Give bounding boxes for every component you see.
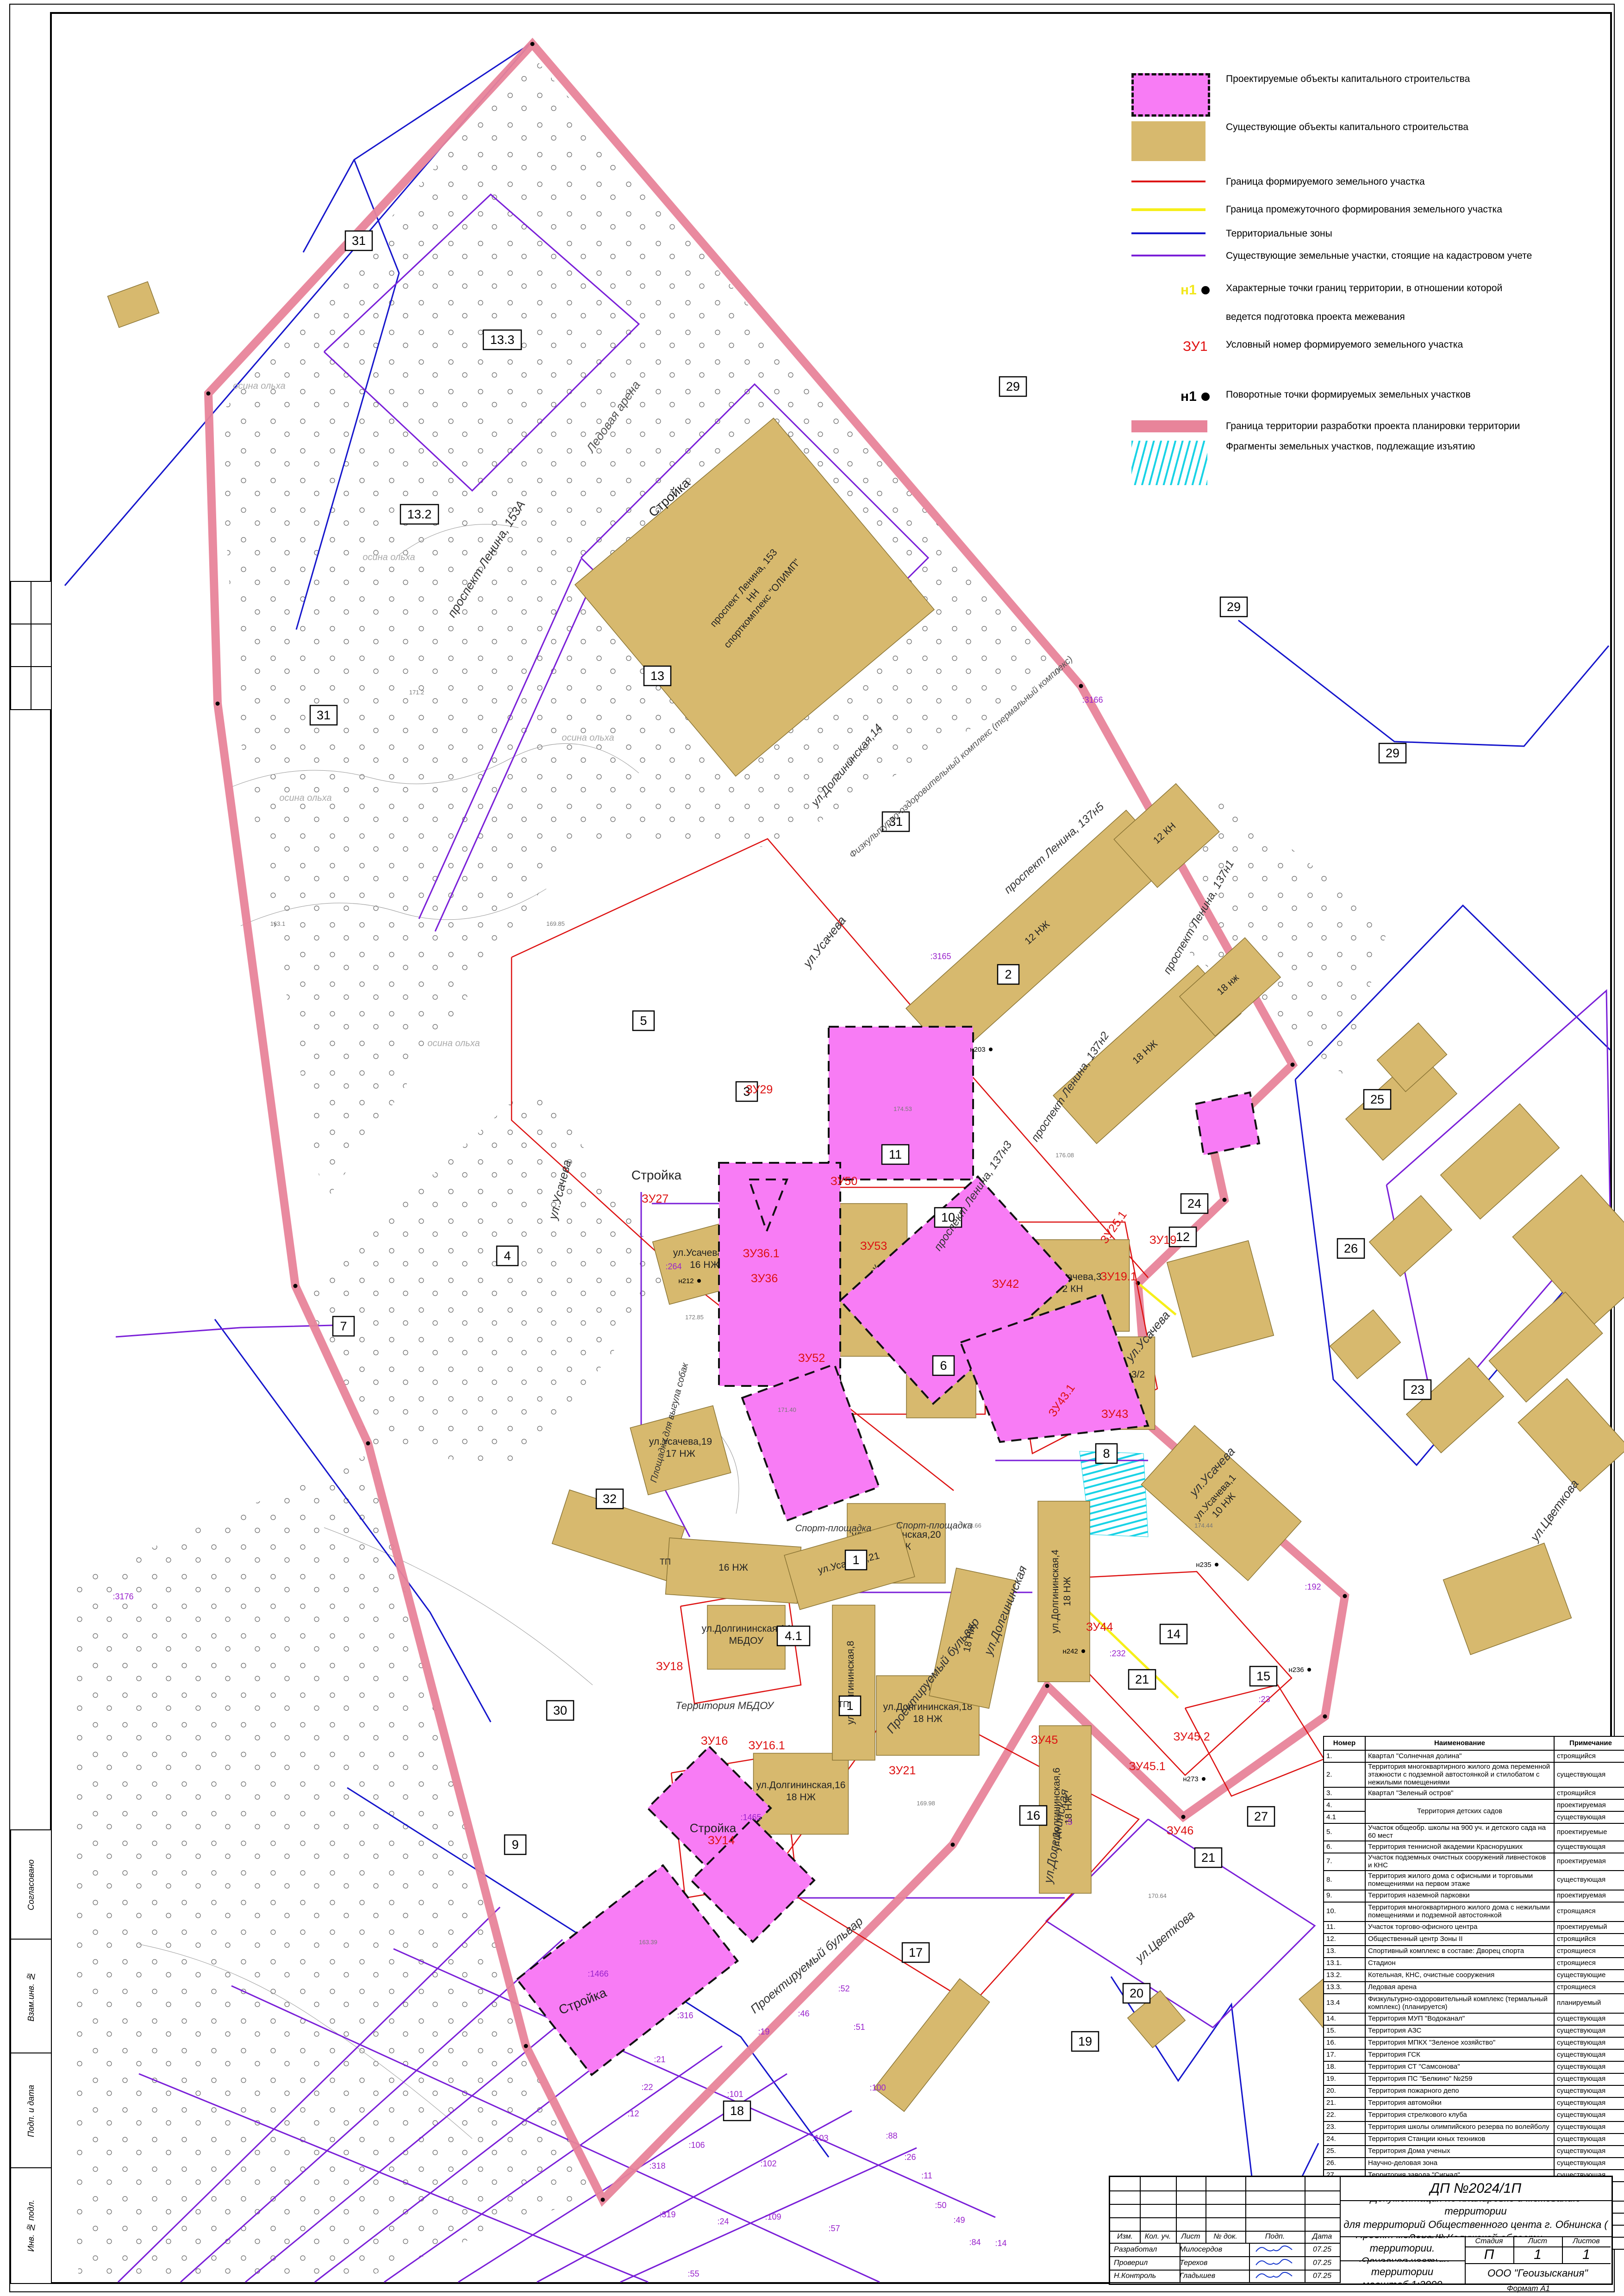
area-number: 24. — [1324, 2134, 1365, 2146]
area-note: строящиеся — [1554, 1946, 1624, 1958]
stamp-empty-cell — [1206, 2204, 1246, 2218]
legend: Проектируемые объекты капитального строи… — [1111, 65, 1607, 491]
area-name: Ледовая арена — [1365, 1982, 1554, 1994]
format-label: Формат А1 — [1507, 2284, 1550, 2293]
parcel-number-label: :3176 — [112, 1592, 133, 1601]
turning-point — [1202, 1777, 1206, 1781]
parcel-number-label: :1465 — [740, 1813, 761, 1822]
table-row: 6.Территория теннисной академии Краснору… — [1324, 1841, 1624, 1853]
elevation-mark: 169.85 — [546, 920, 565, 927]
area-note: строящиеся — [1554, 1958, 1624, 1970]
zu-parcel-label: ЗУ29 — [746, 1083, 773, 1096]
stamp-stage-header: Листов — [1562, 2236, 1611, 2247]
area-number-label: 21 — [1201, 1851, 1215, 1865]
area-name: Участок подземных очистных сооружений ли… — [1365, 1853, 1554, 1871]
turning-point — [1081, 1649, 1085, 1653]
parcel-number-label: :12 — [627, 2109, 639, 2118]
table-row: 9.Территория наземной парковкипроектируе… — [1324, 1890, 1624, 1902]
zu-parcel-label: ЗУ19 — [1149, 1234, 1177, 1247]
area-number-label: 13 — [650, 669, 664, 683]
parcel-number-label: :5 — [1065, 1817, 1072, 1827]
area-number: 23. — [1324, 2121, 1365, 2134]
area-note: существующая — [1554, 2134, 1624, 2146]
turning-point — [1215, 1563, 1218, 1566]
area-number-label: 13.3 — [490, 333, 515, 347]
area-number: 11. — [1324, 1922, 1365, 1934]
boundary-point — [216, 702, 220, 706]
table-row: 13.2.Котельная, КНС, очистные сооружения… — [1324, 1970, 1624, 1982]
area-note: строящаяся — [1554, 1902, 1624, 1922]
area-number: 20. — [1324, 2085, 1365, 2097]
map-text-label: ТП — [838, 1700, 849, 1709]
map-text-label: Территория МБДОУ — [675, 1700, 775, 1711]
stamp-empty-cell — [1245, 2177, 1305, 2191]
parcel-number-label: :264 — [665, 1262, 681, 1271]
boundary-point — [1223, 1198, 1227, 1202]
parcel-number-label: :3166 — [1082, 695, 1103, 705]
boundary-point — [524, 2044, 528, 2048]
stamp-empty-cell — [1206, 2190, 1246, 2205]
zu-parcel-label: ЗУ36.1 — [743, 1247, 779, 1260]
area-number-label: 26 — [1344, 1242, 1358, 1255]
area-number-label: 20 — [1130, 1986, 1143, 2000]
parcel-number-label: :51 — [853, 2022, 865, 2032]
parcel-number-label: :52 — [838, 1984, 849, 1993]
area-number-label: 29 — [1006, 380, 1020, 393]
areas-table-header: Наименование — [1365, 1736, 1554, 1750]
parcel-number-label: :1466 — [587, 1969, 608, 1978]
area-number-label: 19 — [1078, 2034, 1092, 2048]
area-name: Территория школы олимпийского резерва по… — [1365, 2121, 1554, 2134]
parcel-number-label: :102 — [760, 2159, 776, 2168]
boundary-point — [1045, 1684, 1049, 1688]
map-text-label: осина ольха — [562, 733, 614, 743]
area-note: существующая — [1554, 2025, 1624, 2037]
area-name: Стадион — [1365, 1958, 1554, 1970]
area-number: 1. — [1324, 1750, 1365, 1762]
area-number: 14. — [1324, 2013, 1365, 2025]
parcel-number-label: :57 — [828, 2224, 840, 2233]
area-name: Территория многоквартирного жилого дома … — [1365, 1762, 1554, 1787]
parcel-number-label: :50 — [935, 2201, 946, 2210]
parcel-number-label: :22 — [641, 2083, 653, 2092]
area-number-label: 31 — [317, 708, 331, 722]
area-note: проектируемая — [1554, 1853, 1624, 1871]
zu-parcel-label: ЗУ52 — [798, 1352, 825, 1365]
turning-point-label: н273 — [1183, 1775, 1198, 1783]
legend-label: Характерные точки границ территории, в о… — [1226, 282, 1596, 324]
area-note: проектируемые — [1554, 1823, 1624, 1841]
stamp-signature — [1245, 2270, 1305, 2283]
area-note: существующая — [1554, 1841, 1624, 1853]
area-note: строящийся — [1554, 1750, 1624, 1762]
zu-parcel-label: ЗУ18 — [656, 1660, 683, 1673]
map-text-label: Спорт-площадка — [896, 1521, 972, 1531]
area-number-label: 12 — [1176, 1230, 1190, 1244]
boundary-point — [1291, 1063, 1295, 1067]
parcel-number-label: :106 — [688, 2140, 705, 2150]
legend-label: Существующие объекты капитального строит… — [1226, 121, 1596, 133]
boundary-point — [1079, 684, 1083, 688]
table-row: 16.Территория МПКХ "Зеленое хозяйство"су… — [1324, 2037, 1624, 2049]
stamp-role: Н.Контроль — [1110, 2270, 1181, 2283]
stamp-col-header: Дата — [1305, 2231, 1341, 2244]
area-name: Территория пожарного депо — [1365, 2085, 1554, 2097]
existing-building — [874, 1979, 989, 2112]
map-text-label: Стройка — [690, 1821, 737, 1835]
stamp-empty-cell — [1140, 2217, 1177, 2232]
table-row: 11.Участок торгово-офисного центрапроект… — [1324, 1922, 1624, 1934]
zu-parcel-label: ЗУ50 — [831, 1175, 858, 1188]
area-note: существующая — [1554, 2109, 1624, 2121]
boundary-point — [294, 1284, 298, 1288]
stamp-empty-cell — [1206, 2217, 1246, 2232]
area-name: Территория наземной парковки — [1365, 1890, 1554, 1902]
parcel-number-label: :192 — [1305, 1582, 1321, 1591]
legend-swatch-line-yellow — [1131, 208, 1206, 211]
parcel-number-label: :319 — [659, 2210, 675, 2219]
existing-building — [1443, 1543, 1572, 1655]
stamp-empty-cell — [1176, 2190, 1206, 2205]
zu-parcel-label: ЗУ42 — [992, 1278, 1019, 1291]
boundary-point — [1323, 1715, 1327, 1719]
area-number: 3. — [1324, 1787, 1365, 1799]
area-number-label: 29 — [1386, 746, 1399, 760]
legend-swatch-line-blue — [1131, 232, 1206, 234]
existing-building — [1518, 1379, 1624, 1491]
area-number: 4. — [1324, 1799, 1365, 1811]
zu-parcel-label: ЗУ16 — [701, 1734, 728, 1747]
stamp-stage-value: П — [1465, 2246, 1514, 2264]
table-row: 13.Спортивный комплекс в составе: Дворец… — [1324, 1946, 1624, 1958]
zu-parcel-label: ЗУ36 — [751, 1272, 778, 1285]
area-number: 8. — [1324, 1871, 1365, 1890]
area-number-label: 31 — [352, 234, 366, 248]
table-row: 23.Территория школы олимпийского резерва… — [1324, 2121, 1624, 2134]
legend-swatch-hatch — [1131, 441, 1207, 485]
area-note: проектируемая — [1554, 1799, 1624, 1811]
zu-parcel-label: ЗУ44 — [1086, 1621, 1113, 1634]
area-note: существующая — [1554, 2158, 1624, 2170]
elevation-mark: 171.40 — [778, 1406, 796, 1413]
stamp-empty-cell — [1176, 2177, 1206, 2191]
parcel-number-label: :232 — [1109, 1649, 1125, 1658]
parcel-number-label: :21 — [654, 2055, 665, 2064]
area-note: существующие — [1554, 1970, 1624, 1982]
area-number: 19. — [1324, 2073, 1365, 2085]
area-number-label: 25 — [1370, 1092, 1384, 1106]
turning-point — [989, 1048, 993, 1051]
area-number-label: 4 — [504, 1249, 511, 1263]
drawing-sheet: проспект Ленина, 153ННспорткомплекс "ОЛИ… — [0, 0, 1624, 2296]
area-name: Научно-деловая зона — [1365, 2158, 1554, 2170]
area-number: 13.1. — [1324, 1958, 1365, 1970]
area-number: 13. — [1324, 1946, 1365, 1958]
existing-building-label: 16 НЖ — [718, 1562, 748, 1573]
elevation-mark: 176.08 — [1056, 1152, 1074, 1159]
area-number-label: 1 — [852, 1553, 859, 1567]
stamp-empty-cell — [1305, 2177, 1341, 2191]
area-name: Участок общеобр. школы на 900 уч. и детс… — [1365, 1823, 1554, 1841]
signature-stroke — [1256, 2272, 1292, 2277]
existing-building — [1167, 1241, 1274, 1357]
legend-label: Территориальные зоны — [1226, 228, 1596, 240]
area-name: Спортивный комплекс в составе: Дворец сп… — [1365, 1946, 1554, 1958]
legend-swatch-existing — [1131, 121, 1206, 161]
stamp-col-header: Лист — [1176, 2231, 1206, 2244]
stamp-doc-number: ДП №2024/1П — [1340, 2177, 1612, 2201]
parcel-number-label: :23 — [1258, 1695, 1270, 1704]
table-row: 4.Территория детских садовпроектируемая — [1324, 1799, 1624, 1811]
area-note: существующая — [1554, 1871, 1624, 1890]
areas-table-header: Примечание — [1554, 1736, 1624, 1750]
stamp-empty-cell — [1305, 2217, 1341, 2232]
elevation-mark: 173.66 — [963, 1522, 981, 1529]
parcel-number-label: :101 — [727, 2090, 743, 2099]
margin-grid — [10, 581, 52, 710]
stamp-col-header: № док. — [1206, 2231, 1246, 2244]
signature-stroke — [1256, 2246, 1292, 2251]
area-number-label: 2 — [1005, 967, 1012, 981]
area-number: 6. — [1324, 1841, 1365, 1853]
area-number: 2. — [1324, 1762, 1365, 1787]
table-row: 12.Общественный центр Зоны IIстроящийся — [1324, 1934, 1624, 1946]
area-name: Физкультурно-оздоровительный комплекс (т… — [1365, 1994, 1554, 2013]
stamp-signature — [1245, 2243, 1305, 2257]
area-name: Территория детских садов — [1365, 1799, 1554, 1823]
area-note: планируемый — [1554, 1994, 1624, 2013]
parcel-number-label: :19 — [758, 2027, 769, 2036]
elevation-mark: 170.64 — [1148, 1892, 1167, 1899]
area-number: 7. — [1324, 1853, 1365, 1871]
zu-parcel-label: ЗУ27 — [642, 1192, 669, 1205]
turning-point-label: н212 — [678, 1277, 693, 1285]
parcel-number-label: :316 — [677, 2011, 693, 2020]
table-row: 19.Территория ПС "Белкино" №259существую… — [1324, 2073, 1624, 2085]
stamp-empty-cell — [1206, 2177, 1246, 2191]
table-row: 21.Территория автомойкисуществующая — [1324, 2097, 1624, 2109]
stamp-empty-cell — [1305, 2204, 1341, 2218]
table-row: 18.Территория СТ "Самсонова"существующая — [1324, 2061, 1624, 2073]
margin-box-soglasovano: Согласовано — [10, 1829, 52, 1940]
legend-swatch-point-black: н1 — [1181, 389, 1210, 405]
area-note: существующая — [1554, 2073, 1624, 2085]
legend-swatch-line-red — [1131, 181, 1206, 182]
area-number-label: 14 — [1167, 1627, 1181, 1641]
area-number-label: 8 — [1103, 1447, 1110, 1460]
stamp-signature — [1245, 2256, 1305, 2271]
parcel-number-label: :109 — [765, 2212, 781, 2221]
area-number-label: 4.1 — [785, 1629, 802, 1643]
area-number: 16. — [1324, 2037, 1365, 2049]
area-note: существующая — [1554, 2121, 1624, 2134]
area-number: 5. — [1324, 1823, 1365, 1841]
map-text-label: ул.Цветкова — [1132, 1908, 1197, 1965]
stamp-doc-title: Документация по планировке и межеванию т… — [1340, 2200, 1612, 2237]
areas-table: НомерНаименованиеПримечание1.Квартал "Со… — [1323, 1736, 1624, 2250]
area-number-label: 27 — [1254, 1809, 1268, 1823]
stamp-person-name: Милосердов — [1176, 2243, 1250, 2257]
area-number-label: 16 — [1026, 1809, 1040, 1822]
area-number: 9. — [1324, 1890, 1365, 1902]
area-note: строящийся — [1554, 1787, 1624, 1799]
zu-parcel-label: ЗУ14 — [708, 1834, 735, 1847]
area-number: 25. — [1324, 2146, 1365, 2158]
table-row: 17.Территория ГСКсуществующая — [1324, 2049, 1624, 2061]
stamp-col-header: Подп. — [1245, 2231, 1305, 2244]
area-note: существующая — [1554, 1811, 1624, 1823]
area-number-label: 21 — [1135, 1672, 1149, 1686]
turning-point-label: н203 — [970, 1046, 985, 1054]
zu-parcel-label: ЗУ45.1 — [1129, 1760, 1165, 1773]
area-number-label: 13.2 — [407, 507, 432, 521]
zu-parcel-label: ЗУ53 — [860, 1240, 887, 1253]
legend-label: Граница территории разработки проекта пл… — [1226, 420, 1596, 432]
boundary-point — [1343, 1594, 1347, 1598]
area-note: строящийся — [1554, 1934, 1624, 1946]
legend-swatch-zu: ЗУ1 — [1183, 339, 1208, 355]
area-name: Территория СТ "Самсонова" — [1365, 2061, 1554, 2073]
turning-point-label: н235 — [1196, 1561, 1211, 1569]
area-name: Территория многоквартирного жилого дома … — [1365, 1902, 1554, 1922]
area-note: существующая — [1554, 2097, 1624, 2109]
map-text-label: Спорт-площадка — [795, 1523, 871, 1534]
area-note: существующая — [1554, 2061, 1624, 2073]
stamp-empty-cell — [1110, 2217, 1141, 2232]
stamp-date: 07.25 — [1305, 2243, 1341, 2257]
area-number-label: 11 — [889, 1148, 902, 1161]
parcel-number-label: :88 — [886, 2131, 897, 2140]
stamp-empty-cell — [1245, 2190, 1305, 2205]
existing-building — [107, 281, 159, 327]
area-number-label: 17 — [909, 1946, 923, 1959]
elevation-mark: 169.98 — [917, 1800, 935, 1807]
parcel-number-label: :55 — [687, 2269, 699, 2278]
proposed-building — [742, 1364, 879, 1521]
area-number: 12. — [1324, 1934, 1365, 1946]
turning-point-label: н242 — [1062, 1647, 1078, 1655]
zu-parcel-label: ЗУ16.1 — [748, 1739, 785, 1752]
stamp-empty-cell — [1140, 2190, 1177, 2205]
area-note: строящиеся — [1554, 1982, 1624, 1994]
parcel-number-label: :49 — [953, 2215, 965, 2225]
area-name: Территория МПКХ "Зеленое хозяйство" — [1365, 2037, 1554, 2049]
title-block: Изм.Кол. уч.Лист№ док.Подп.ДатаРазработа… — [1109, 2176, 1613, 2285]
area-number-label: 7 — [340, 1319, 347, 1333]
map-text-label: осина ольха — [233, 381, 285, 391]
table-row: 10.Территория многоквартирного жилого до… — [1324, 1902, 1624, 1922]
territorial-zone-line — [1238, 620, 1609, 746]
legend-label: Проектируемые объекты капитального строи… — [1226, 73, 1596, 85]
intermediate-parcel-boundary — [1140, 1285, 1176, 1315]
area-number-label: 18 — [730, 2104, 744, 2118]
table-row: 26.Научно-деловая зонасуществующая — [1324, 2158, 1624, 2170]
legend-label: Фрагменты земельных участков, подлежащие… — [1226, 441, 1596, 453]
area-name: Общественный центр Зоны II — [1365, 1934, 1554, 1946]
boundary-point — [601, 2198, 605, 2202]
area-name: Территория МУП "Водоканал" — [1365, 2013, 1554, 2025]
area-note: существующая — [1554, 2049, 1624, 2061]
area-number-label: 30 — [553, 1703, 567, 1717]
area-number-label: 15 — [1256, 1669, 1270, 1683]
legend-label: Условный номер формируемого земельного у… — [1226, 339, 1596, 351]
parcel-number-label: :46 — [798, 2009, 809, 2018]
area-number-label: 24 — [1187, 1197, 1201, 1210]
stamp-date: 07.25 — [1305, 2256, 1341, 2271]
stamp-empty-cell — [1110, 2190, 1141, 2205]
turning-point — [1307, 1668, 1311, 1672]
table-row: 5.Участок общеобр. школы на 900 уч. и де… — [1324, 1823, 1624, 1841]
parcel-number-label: :84 — [969, 2238, 981, 2247]
stamp-person-name: Гладышев — [1176, 2270, 1250, 2283]
stamp-empty-cell — [1245, 2204, 1305, 2218]
table-row: 13.1.Стадионстроящиеся — [1324, 1958, 1624, 1970]
stamp-stage-header: Лист — [1513, 2236, 1563, 2247]
stamp-person-name: Терехов — [1176, 2256, 1250, 2271]
area-name: Участок торгово-офисного центра — [1365, 1922, 1554, 1934]
area-number-label: 6 — [940, 1359, 947, 1373]
legend-swatch-point-yellow: н1 — [1181, 282, 1210, 298]
area-number: 21. — [1324, 2097, 1365, 2109]
boundary-point — [206, 392, 211, 396]
area-note: существующая — [1554, 2037, 1624, 2049]
area-name: Территория ГСК — [1365, 2049, 1554, 2061]
area-name: Котельная, КНС, очистные сооружения — [1365, 1970, 1554, 1982]
legend-label: Существующие земельные участки, стоящие … — [1226, 250, 1596, 262]
table-row: 15.Территория АЗСсуществующая — [1324, 2025, 1624, 2037]
area-number: 17. — [1324, 2049, 1365, 2061]
map-text-label: ул.Усачева — [800, 913, 849, 971]
area-name: Территория автомойки — [1365, 2097, 1554, 2109]
turning-point — [697, 1279, 701, 1283]
parcel-number-label: :318 — [649, 2161, 665, 2171]
elevation-mark: 163.1 — [270, 920, 286, 927]
area-note: существующая — [1554, 1762, 1624, 1787]
signature-stroke — [1256, 2259, 1292, 2265]
elevation-mark: 163.39 — [639, 1939, 657, 1946]
legend-swatch-rose — [1131, 420, 1207, 432]
area-name: Территория ПС "Белкино" №259 — [1365, 2073, 1554, 2085]
parcel-number-label: :24 — [717, 2217, 729, 2226]
elevation-mark: 174.44 — [1194, 1522, 1213, 1529]
legend-label: Граница формируемого земельного участка — [1226, 176, 1596, 188]
area-number-label: 5 — [640, 1014, 647, 1028]
existing-building — [1369, 1196, 1452, 1277]
area-name: Территория АЗС — [1365, 2025, 1554, 2037]
zu-parcel-label: ЗУ46 — [1167, 1824, 1194, 1837]
legend-label: Граница промежуточного формирования земе… — [1226, 204, 1596, 216]
boundary-point — [1181, 1815, 1186, 1819]
area-name: Квартал "Солнечная долина" — [1365, 1750, 1554, 1762]
parcel-number-label: :3165 — [930, 952, 951, 961]
map-text-label: Стройка — [631, 1168, 682, 1182]
legend-label: Поворотные точки формируемых земельных у… — [1226, 389, 1596, 401]
stamp-date: 07.25 — [1305, 2270, 1341, 2283]
elevation-mark: 171.2 — [409, 689, 425, 696]
area-number: 13.2. — [1324, 1970, 1365, 1982]
area-name: Территория Станции юных техников — [1365, 2134, 1554, 2146]
parcel-number-label: :26 — [904, 2152, 916, 2162]
table-row: 13.4Физкультурно-оздоровительный комплек… — [1324, 1994, 1624, 2013]
map-text-label: осина ольха — [362, 552, 415, 562]
stamp-empty-cell — [1140, 2204, 1177, 2218]
stamp-col-header: Кол. уч. — [1140, 2231, 1177, 2244]
area-name: Территория Дома ученых — [1365, 2146, 1554, 2158]
stamp-drawing-name: Чертёж межевания территориимасштаб 1:200… — [1340, 2260, 1466, 2284]
boundary-point — [366, 1441, 370, 1446]
area-number: 18. — [1324, 2061, 1365, 2073]
map-text-label: осина ольха — [279, 793, 331, 803]
